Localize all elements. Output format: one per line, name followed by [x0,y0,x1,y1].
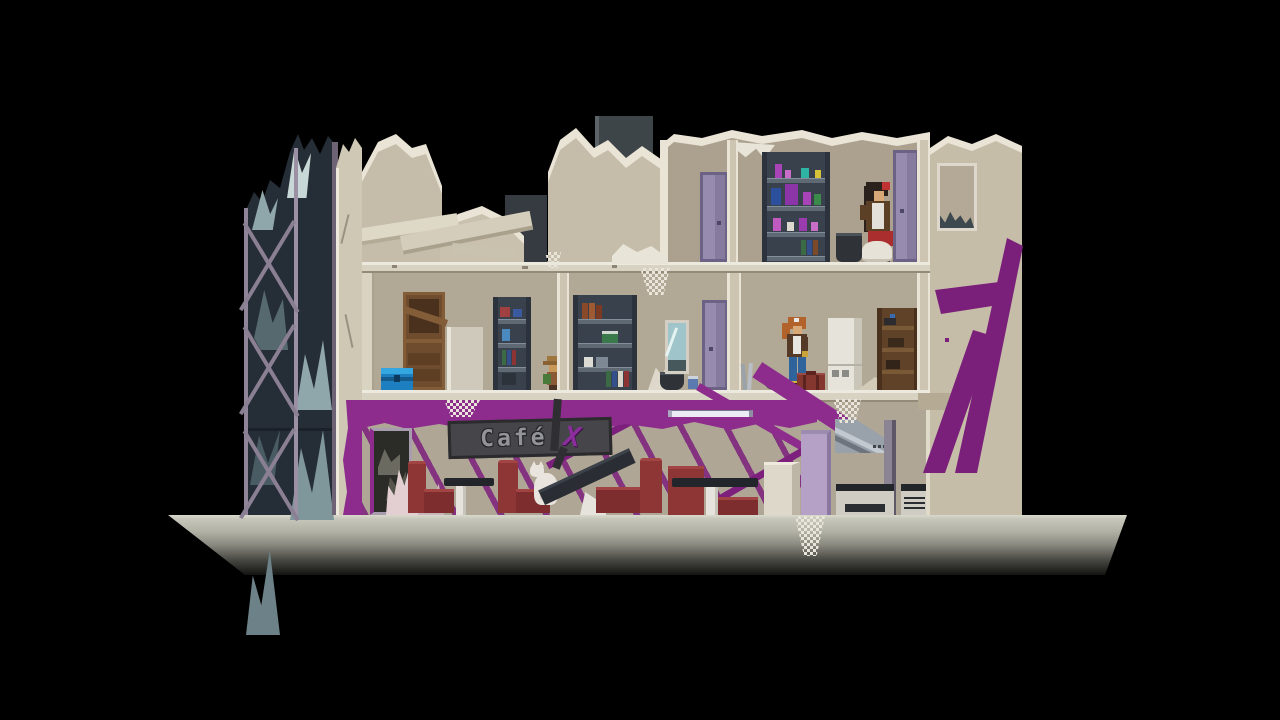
green-item [814,194,821,205]
glass-tower [244,130,338,515]
cauldron[interactable] [660,372,684,390]
wooden-shelf-right[interactable] [877,308,919,390]
book [606,371,611,387]
chest-lid [381,368,413,374]
slab-debris-dot [392,265,397,268]
shelf-board-wood [882,326,914,330]
shelf-board [578,319,632,324]
metal-shelf-left[interactable] [493,297,531,390]
book [502,350,506,365]
dark-item [884,318,896,325]
fridge-sticker [832,370,839,377]
door-shade [716,303,725,387]
green-box [602,331,618,343]
white-sack[interactable] [862,241,892,262]
white-mug [584,357,593,367]
cabinet-shelf-line [406,339,442,343]
book [618,371,623,387]
purple-door-upper-left[interactable] [700,172,728,262]
white-item [787,222,794,231]
girl-face [874,191,884,201]
blue-tool [513,309,522,317]
book [507,350,511,365]
game-scene: Café X [0,0,1280,720]
booth-seat [424,489,454,513]
counter-drawer [845,504,885,512]
metal-shelf-center[interactable] [573,295,637,390]
gray-box [596,357,608,367]
facade-window [937,163,977,231]
booth-seat [718,497,758,515]
cafe-table-pedestal [456,486,466,515]
traveler-face [793,326,802,334]
purple-door-middle[interactable] [702,300,728,390]
booth-seat [596,487,642,513]
cream-counter [764,462,800,515]
shelf-board [767,232,825,237]
door-knob [900,209,904,213]
column-crack [344,314,353,348]
dark-item [886,360,900,369]
counter-vent-line [904,502,925,504]
pink-crystal [811,222,818,231]
book [612,371,617,387]
teal-gem [801,168,809,178]
shelf-board [498,367,526,372]
mirror[interactable] [665,320,689,374]
tower-mullion [244,208,248,515]
shelf-board-wood [882,370,914,374]
column-highlight [336,168,339,515]
lilac-doorway[interactable] [801,430,831,515]
shelf-board [498,343,526,348]
fridge-seam [828,364,862,366]
cafe-sign: Café X [448,417,613,459]
book [596,305,602,319]
book [807,240,812,255]
suitcase-handle [806,371,816,375]
cafe-table-top [444,478,494,486]
fridge-sticker [842,370,849,377]
counter-vent-line [904,497,925,499]
crystal-shelf[interactable] [762,152,830,262]
top-floor-left-edge [660,140,668,262]
booth-backrest [498,460,518,513]
fluorescent-light [668,410,753,417]
mirror-dark [668,360,686,371]
red-tool [500,307,510,317]
broken-glass-shards [940,210,974,228]
counter-vent-line [904,507,925,509]
fridge[interactable] [828,318,862,390]
column-crack [340,214,349,244]
book [813,240,818,255]
blue-chest[interactable] [381,368,413,390]
purple-crystal [803,192,811,205]
traveler-headband [794,318,799,322]
wall-divider [557,273,569,390]
girl-arm [860,205,868,220]
cafe-table-top [672,478,758,487]
purple-crystal-large [785,184,798,205]
book [589,303,595,319]
mirror-streak [665,327,678,356]
shelf-board [767,206,825,211]
blue-gem [502,329,510,341]
blue-bottles [771,188,781,205]
shelf-board-wood [882,348,914,352]
fridge-side-shade [854,318,862,390]
book [801,240,806,255]
door-knob [709,347,713,351]
shelf-board [767,178,825,183]
yellow-item [815,170,821,178]
book [624,371,629,387]
booth-backrest [668,466,704,515]
slab-debris-dot [612,265,617,268]
shelf-board [578,343,632,348]
purple-crystal [799,218,807,231]
column-purple-paint [343,400,362,515]
booth-backrest [640,458,662,513]
left-column [336,134,362,515]
girl-apron [872,203,884,229]
hood-button [873,445,876,448]
kitchen-counter-right [901,484,928,515]
cafe-table-pedestal [706,487,718,515]
book [512,350,516,365]
kitchen-counter [836,484,894,515]
black-pot[interactable] [836,233,862,262]
red-bow [882,182,890,190]
purple-x-graffiti [915,238,1023,473]
light-wall-panel [447,327,483,390]
slab-debris-dot [522,266,528,269]
chest-clasp [394,375,400,382]
creature-pack [543,374,551,384]
pink-crystal [773,218,781,231]
cabinet-drawer [408,353,440,365]
tower-mullion [294,148,298,515]
shelf-board [767,256,825,261]
purple-crystal [775,164,782,178]
wall-divider [727,140,738,262]
dark-item [888,338,904,347]
pink-crystal [785,170,791,178]
wall-divider [727,273,741,390]
cafe-sign-text: Café [480,425,548,453]
book [582,303,588,319]
middle-left-wall-blocks [362,273,374,390]
shelf-board [498,319,526,324]
door-shade [715,175,725,259]
traveler-shirt [793,336,801,354]
dark-box [502,373,516,385]
door-knob [717,221,721,225]
ground-platform [155,515,1128,577]
traveler-jeans-leg [789,357,797,381]
door-debris [378,449,400,475]
hood-button [878,445,881,448]
